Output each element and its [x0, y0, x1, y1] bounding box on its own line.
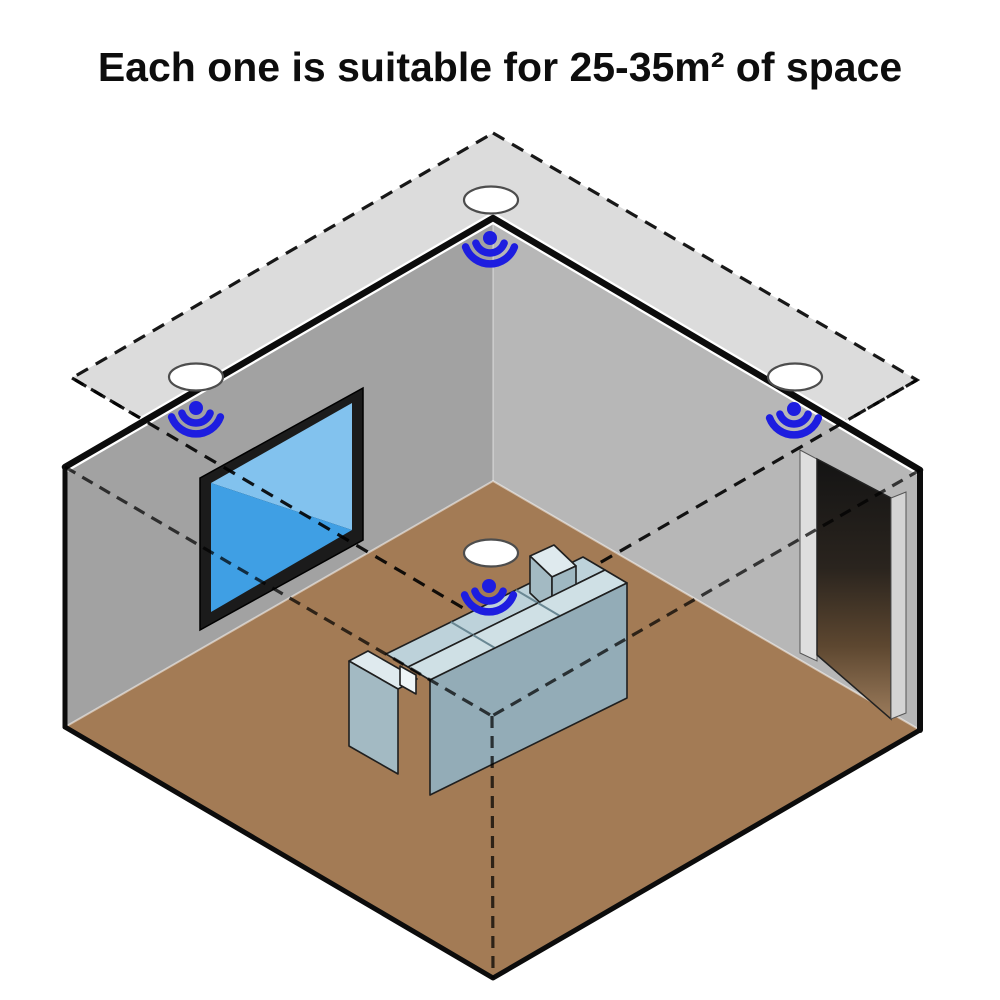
ceiling-lamp-back-corner — [464, 187, 518, 214]
door-left-jamb — [800, 450, 817, 661]
door-right-jamb — [891, 492, 906, 719]
product-infographic: Each one is suitable for 25-35m² of spac… — [0, 0, 1000, 1000]
room-illustration — [0, 0, 1000, 1000]
ceiling-lamp-left — [169, 364, 223, 391]
ceiling-lamp-right — [768, 364, 822, 391]
ceiling-lamp-center — [464, 540, 518, 567]
